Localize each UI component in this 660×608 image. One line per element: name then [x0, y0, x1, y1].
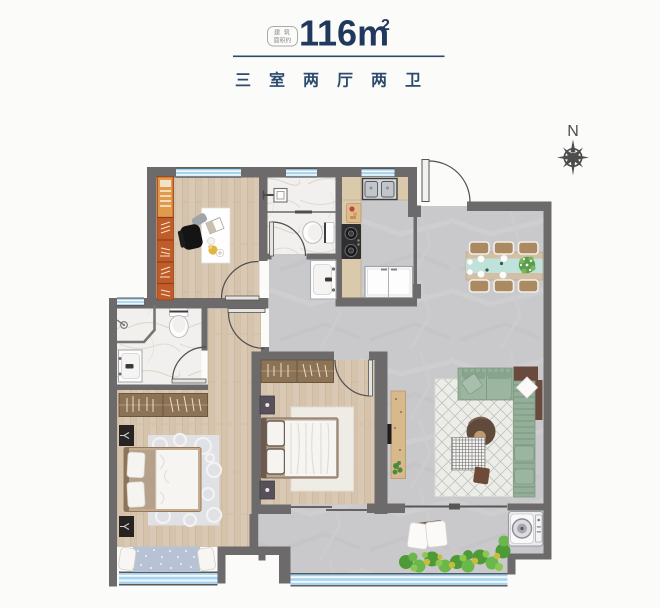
svg-text:2: 2	[381, 17, 390, 34]
svg-text:面积约: 面积约	[273, 37, 291, 45]
svg-text:N: N	[567, 123, 579, 140]
svg-text:建 筑: 建 筑	[274, 29, 291, 37]
svg-text:三室两厅两卫: 三室两厅两卫	[235, 71, 439, 90]
svg-text:116m: 116m	[299, 13, 389, 54]
